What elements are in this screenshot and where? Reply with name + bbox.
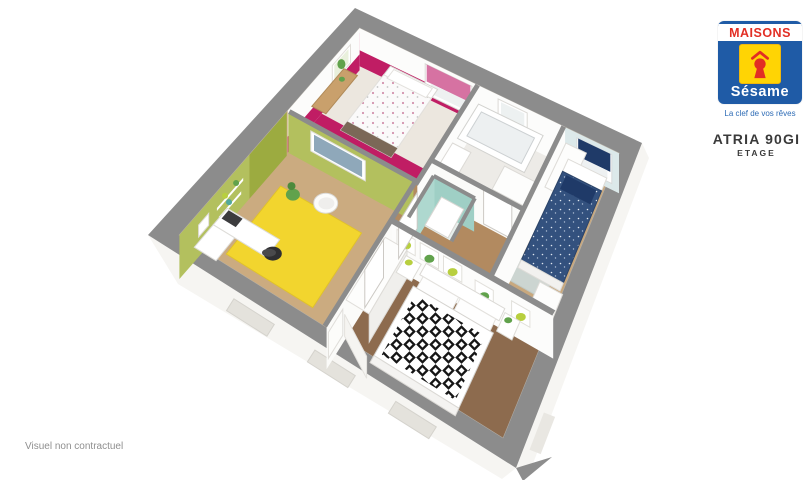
logo-company-bottom: Sésame — [718, 85, 802, 100]
logo-tagline: La clef de vos rêves — [717, 109, 803, 118]
maisons-sesame-logo: MAISONS Sésame La clef de vos rêves — [717, 21, 803, 118]
logo-card: MAISONS Sésame — [718, 21, 802, 104]
floorplan-3d-render — [0, 0, 811, 480]
floor-label: ETAGE — [700, 148, 811, 158]
keyhole-icon — [739, 44, 781, 84]
disclaimer-text: Visuel non contractuel — [25, 441, 123, 452]
model-name: ATRIA 90GI — [700, 131, 811, 147]
page: MAISONS Sésame La clef de vos rêves ATRI… — [0, 0, 811, 480]
keyhole-icon-glyph — [743, 47, 777, 81]
logo-company-top: MAISONS — [718, 24, 802, 41]
